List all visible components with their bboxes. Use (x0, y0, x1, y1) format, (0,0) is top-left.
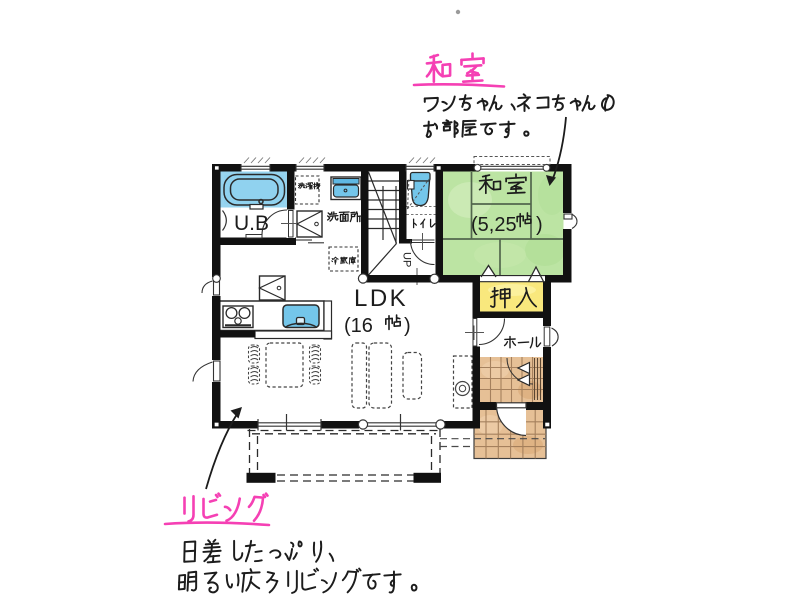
svg-text:U.B: U.B (234, 212, 269, 235)
svg-text:): ) (536, 214, 543, 236)
svg-text:(5,25: (5,25 (471, 214, 517, 236)
svg-text:): ) (404, 315, 411, 337)
svg-text:LDK: LDK (354, 285, 408, 312)
svg-text:UP: UP (401, 252, 413, 267)
svg-text:(16: (16 (344, 315, 373, 337)
